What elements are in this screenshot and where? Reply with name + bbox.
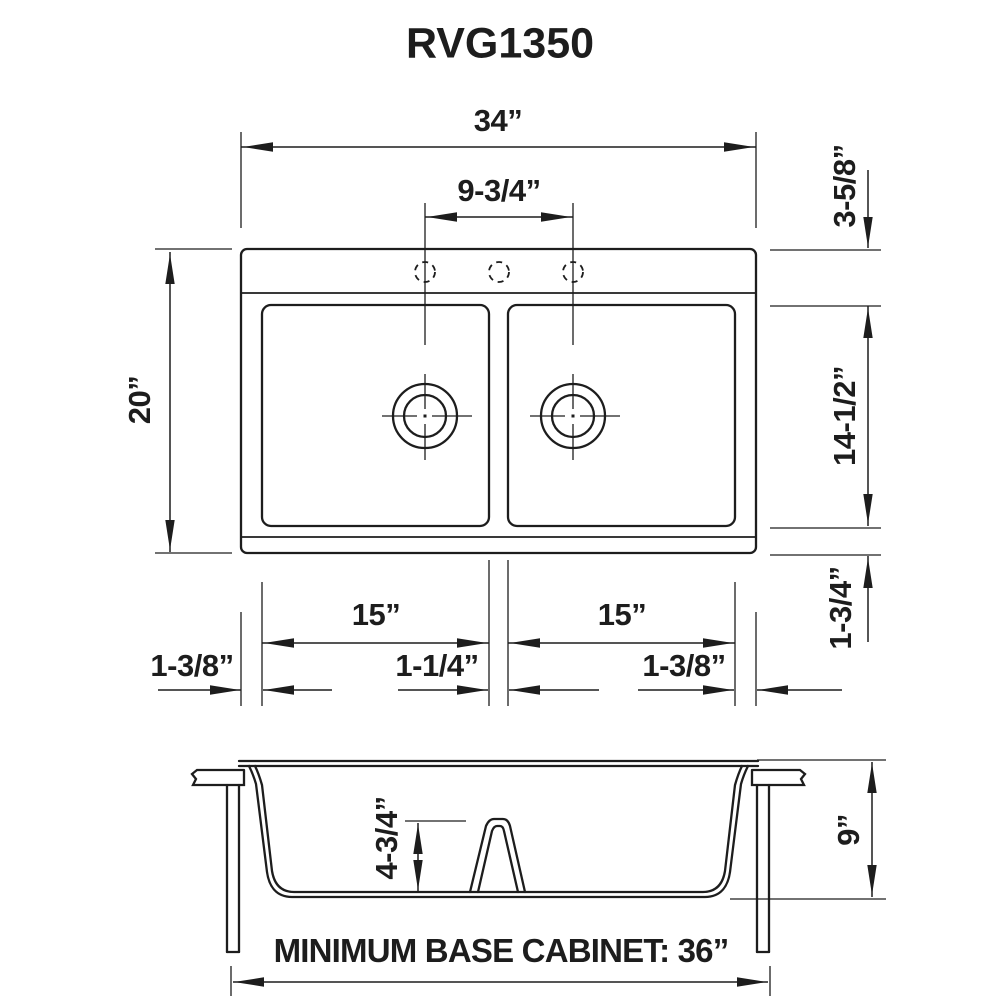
mounting-clip-left bbox=[192, 770, 244, 952]
dim-right-edge-label: 1-3/8” bbox=[642, 648, 725, 684]
dim-bowl-front-back-label: 14-1/2” bbox=[827, 366, 863, 466]
dim-center-divider-label: 1-1/4” bbox=[395, 648, 478, 684]
dim-overall-depth-label: 20” bbox=[122, 376, 158, 424]
dim-left-edge-label: 1-3/8” bbox=[150, 648, 233, 684]
dim-overall-width-label: 34” bbox=[474, 103, 522, 139]
dim-rear-deck-label: 3-5/8” bbox=[827, 144, 863, 227]
dim-left-bowl-width-label: 15” bbox=[352, 597, 400, 633]
sink-spec-drawing: RVG1350 34” 9-3/4” 20” 3-5/8” 14-1/2” 1-… bbox=[0, 0, 1000, 1000]
section-view-linework bbox=[192, 761, 805, 952]
drain-right bbox=[530, 374, 620, 460]
dim-faucet-span-label: 9-3/4” bbox=[457, 173, 540, 209]
model-title: RVG1350 bbox=[406, 20, 594, 69]
minimum-base-cabinet-note: MINIMUM BASE CABINET: 36” bbox=[274, 932, 729, 970]
plan-view-linework bbox=[241, 203, 756, 553]
dim-bowl-depth-label: 9” bbox=[831, 814, 867, 846]
dim-divider-height-label: 4-3/4” bbox=[369, 796, 405, 879]
drain-left bbox=[382, 374, 472, 460]
dim-front-deck-label: 1-3/4” bbox=[823, 566, 859, 649]
faucet-hole-center bbox=[489, 262, 509, 282]
mounting-clip-right bbox=[752, 770, 805, 952]
plan-dimensions bbox=[155, 132, 881, 706]
dim-right-bowl-width-label: 15” bbox=[598, 597, 646, 633]
